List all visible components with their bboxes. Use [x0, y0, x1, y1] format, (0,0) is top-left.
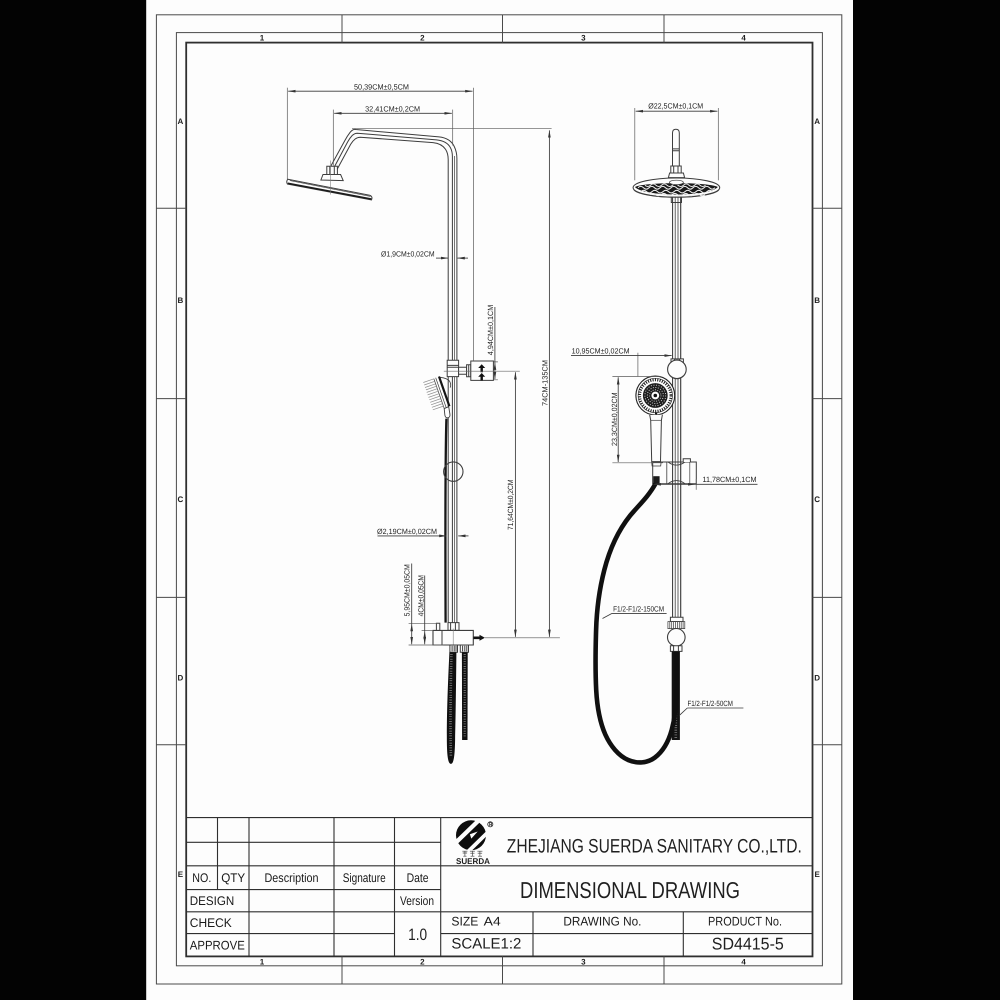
- svg-text:SIZE: SIZE: [451, 915, 478, 929]
- svg-text:SUERDA: SUERDA: [456, 856, 490, 866]
- svg-text:C: C: [814, 495, 820, 504]
- svg-text:SD4415-5: SD4415-5: [712, 934, 784, 953]
- svg-text:A: A: [814, 117, 820, 126]
- svg-text:Ø1,9CM±0,02CM: Ø1,9CM±0,02CM: [381, 249, 435, 258]
- svg-text:11,78CM±0,1CM: 11,78CM±0,1CM: [703, 475, 757, 484]
- svg-text:A: A: [178, 117, 184, 126]
- svg-text:Signature: Signature: [343, 871, 386, 885]
- svg-text:4: 4: [741, 957, 746, 966]
- svg-text:QTY: QTY: [221, 871, 246, 885]
- svg-text:2: 2: [420, 34, 425, 43]
- svg-text:Description: Description: [265, 871, 319, 885]
- svg-text:4: 4: [741, 34, 746, 43]
- svg-text:2: 2: [420, 957, 425, 966]
- svg-text:DESIGN: DESIGN: [190, 894, 235, 908]
- svg-text:D: D: [814, 673, 820, 682]
- svg-text:A4: A4: [484, 915, 501, 929]
- svg-text:1: 1: [260, 34, 265, 43]
- svg-text:Ø2,19CM±0,02CM: Ø2,19CM±0,02CM: [377, 527, 437, 536]
- svg-text:3: 3: [581, 34, 586, 43]
- svg-text:4,94CM±0,1CM: 4,94CM±0,1CM: [486, 305, 495, 355]
- svg-text:APPROVE: APPROVE: [190, 938, 245, 952]
- svg-text:Version: Version: [400, 894, 434, 908]
- svg-text:DIMENSIONAL DRAWING: DIMENSIONAL DRAWING: [520, 877, 740, 903]
- svg-text:3: 3: [581, 957, 586, 966]
- svg-text:32,41CM±0,2CM: 32,41CM±0,2CM: [365, 105, 420, 114]
- svg-text:71,64CM±0,2CM: 71,64CM±0,2CM: [506, 480, 515, 530]
- svg-text:E: E: [178, 870, 184, 879]
- svg-text:1: 1: [260, 957, 265, 966]
- svg-text:F1/2-F1/2-50CM: F1/2-F1/2-50CM: [687, 699, 733, 708]
- svg-text:B: B: [814, 296, 820, 305]
- svg-text:1.0: 1.0: [408, 926, 427, 944]
- svg-text:PRODUCT No.: PRODUCT No.: [708, 915, 782, 929]
- svg-text:23,3CM±0,02CM: 23,3CM±0,02CM: [610, 392, 619, 446]
- svg-text:Date: Date: [407, 871, 429, 885]
- svg-text:F1/2-F1/2-150CM: F1/2-F1/2-150CM: [613, 604, 664, 613]
- svg-text:E: E: [815, 870, 821, 879]
- svg-text:ZHEJIANG SUERDA SANITARY CO.,L: ZHEJIANG SUERDA SANITARY CO.,LTD.: [507, 836, 802, 858]
- svg-text:SCALE1:2: SCALE1:2: [451, 935, 521, 952]
- svg-text:50,39CM±0,5CM: 50,39CM±0,5CM: [354, 83, 409, 92]
- svg-text:Ø22,5CM±0,1CM: Ø22,5CM±0,1CM: [648, 102, 703, 111]
- svg-text:CHECK: CHECK: [190, 916, 233, 930]
- svg-text:C: C: [178, 495, 184, 504]
- svg-text:NO.: NO.: [192, 871, 211, 885]
- svg-text:D: D: [178, 673, 184, 682]
- svg-text:B: B: [178, 296, 184, 305]
- svg-text:74CM-135CM: 74CM-135CM: [540, 360, 549, 406]
- svg-text:10,95CM±0,02CM: 10,95CM±0,02CM: [572, 346, 630, 355]
- svg-text:5,95CM±0,05CM: 5,95CM±0,05CM: [403, 564, 412, 616]
- svg-text:DRAWING No.: DRAWING No.: [563, 915, 641, 929]
- svg-text:4CM±0,05CM: 4CM±0,05CM: [416, 575, 425, 616]
